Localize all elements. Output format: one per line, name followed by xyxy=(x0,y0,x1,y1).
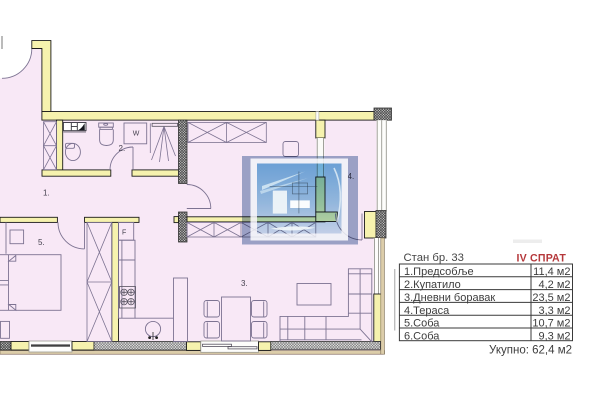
svg-text:5.Соба: 5.Соба xyxy=(404,317,440,329)
svg-text:4,2 м2: 4,2 м2 xyxy=(538,279,570,291)
svg-text:1.Предсобље: 1.Предсобље xyxy=(404,266,474,278)
svg-text:W: W xyxy=(133,131,140,138)
svg-text:6.Соба: 6.Соба xyxy=(404,330,440,342)
svg-text:3.Дневни боравак: 3.Дневни боравак xyxy=(404,292,495,304)
svg-text:5.: 5. xyxy=(38,238,45,247)
svg-text:3,3 м2: 3,3 м2 xyxy=(538,305,570,317)
svg-text:IV СПРАТ: IV СПРАТ xyxy=(517,253,567,265)
svg-text:Стан бр. 33: Стан бр. 33 xyxy=(404,252,464,264)
svg-text:11,4 м2: 11,4 м2 xyxy=(533,266,570,278)
svg-text:F: F xyxy=(122,230,126,237)
svg-text:1.: 1. xyxy=(43,189,50,198)
svg-text:2.Купатило: 2.Купатило xyxy=(404,279,461,291)
svg-text:Укупно: 62,4 м2: Укупно: 62,4 м2 xyxy=(489,345,572,357)
svg-text:2.: 2. xyxy=(119,144,126,153)
svg-text:23,5 м2: 23,5 м2 xyxy=(532,292,570,304)
svg-text:10,7 м2: 10,7 м2 xyxy=(532,317,570,329)
svg-text:9,3 м2: 9,3 м2 xyxy=(538,330,570,342)
svg-text:4.Тераса: 4.Тераса xyxy=(404,305,450,317)
svg-text:3.: 3. xyxy=(241,279,248,288)
